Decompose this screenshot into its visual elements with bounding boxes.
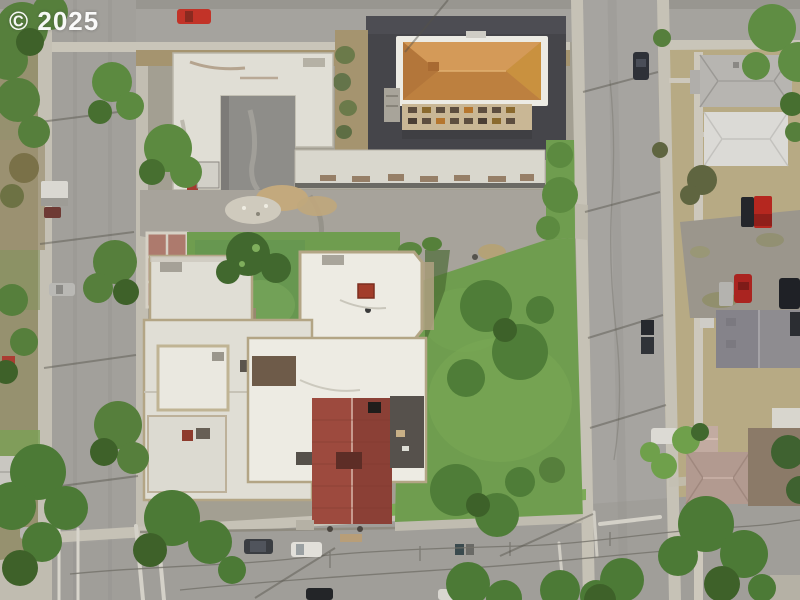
red-roof-dark-patch — [336, 452, 362, 469]
fire-escape — [384, 88, 400, 122]
east-annex-dark — [390, 396, 424, 468]
roof-vent-dark — [296, 452, 314, 465]
rooftop-unit — [466, 31, 486, 38]
hvac-unit — [212, 352, 224, 361]
white-carport-roof — [772, 408, 800, 428]
u-roof-unit — [303, 58, 325, 67]
red-car-glass — [738, 282, 749, 290]
annex-clutter — [396, 430, 405, 437]
dark-roof-section — [252, 356, 296, 386]
dark-car-glass — [636, 59, 646, 67]
house-gray-hip — [690, 55, 792, 107]
hedge-blob — [422, 237, 442, 251]
east-parapet-walk — [422, 262, 434, 330]
debris — [472, 254, 478, 260]
black-pickup-right-b — [641, 337, 654, 354]
courtyard-wall-shadow — [221, 96, 229, 190]
gravel-pile — [225, 196, 281, 224]
black-suv-gravel-lot — [779, 278, 800, 309]
inner-roof-square-b — [148, 416, 226, 492]
aerial-photo-canvas — [0, 0, 800, 600]
chimney-red-small — [182, 430, 193, 441]
rv-cab — [41, 198, 68, 206]
bush-row — [333, 73, 351, 91]
south-clutter — [340, 534, 362, 542]
gravel-speck — [256, 212, 260, 216]
bush-row — [336, 125, 352, 139]
south-clutter-dot — [357, 526, 363, 532]
bush-row — [335, 46, 355, 64]
white-van-glass — [296, 544, 304, 555]
red-car-top-street — [177, 9, 211, 24]
red-roof-vent-black — [368, 402, 381, 413]
dormer — [726, 318, 736, 326]
dormer — [726, 340, 736, 348]
annex-clutter — [402, 446, 409, 451]
white-shed — [700, 318, 714, 328]
roof-west-slope — [716, 310, 759, 368]
black-truck-gravel-lot — [741, 197, 754, 227]
tree-small-right — [653, 29, 671, 47]
bush-row — [339, 100, 357, 116]
weed-patch — [690, 246, 710, 258]
red-brick-chimney — [358, 284, 374, 298]
strip-roof — [295, 150, 545, 188]
gravel-speck — [242, 206, 246, 210]
strip-south-edge — [295, 183, 545, 188]
house-white-hip — [704, 112, 788, 166]
silver-car-gravel-lot — [719, 282, 733, 306]
campus-block — [136, 16, 583, 542]
silver-car-glass — [56, 285, 63, 294]
orange-roof-dormer — [428, 62, 439, 71]
copyright-watermark: © 2025 — [9, 6, 99, 37]
roof-vent-dark — [196, 428, 210, 439]
south-clutter-dot — [327, 526, 333, 532]
trash-bin-gray — [466, 544, 474, 555]
black-pickup-right-a — [641, 320, 654, 335]
white-van-bottom-street — [291, 542, 322, 557]
red-car-windshield — [185, 11, 193, 22]
tree-lone-lawn — [539, 457, 565, 483]
weed-patch — [756, 233, 784, 247]
red-truck-bed — [754, 214, 772, 226]
van-roof — [250, 541, 266, 552]
trash-bin-teal — [455, 544, 464, 555]
dark-car-gravel-lot — [790, 312, 800, 336]
south-stairs — [296, 520, 314, 530]
tan-dirt-patch — [297, 196, 337, 216]
aerial-screenshot: © 2025 — [0, 0, 800, 600]
dark-red-car-left-street — [44, 207, 61, 218]
nw-roof-unit — [160, 262, 182, 272]
chimney — [733, 62, 739, 68]
u-courtyard-concrete — [221, 96, 295, 190]
roof-unit-gray — [322, 255, 344, 265]
black-car-bottom-edge — [306, 588, 333, 600]
gravel-speck — [264, 204, 268, 208]
facade-shadow — [402, 130, 532, 139]
long-strip-building — [295, 150, 545, 188]
